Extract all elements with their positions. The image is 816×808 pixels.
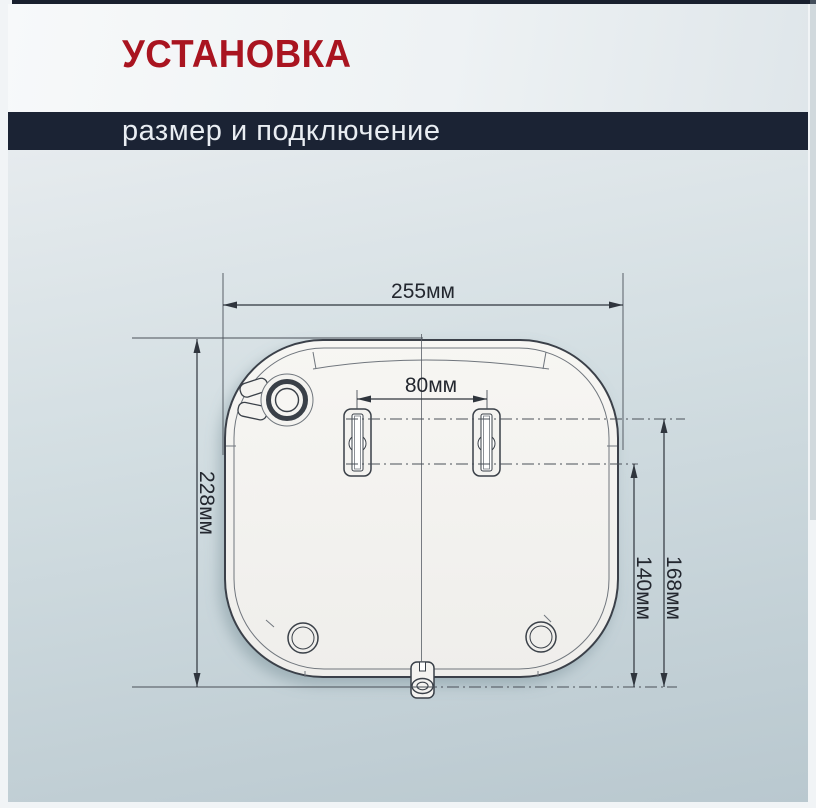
dimension-upper-mount-label: 168мм [662, 556, 685, 620]
dimension-height: 228мм [194, 339, 219, 687]
dimension-lower-mount-label: 140мм [632, 556, 655, 620]
dimension-width-label: 255мм [391, 280, 455, 303]
bottom-bracket [411, 662, 434, 698]
dimension-lower-mount: 140мм [631, 464, 656, 687]
dimension-height-label: 228мм [195, 471, 218, 535]
dimension-mount-spacing-label: 80мм [405, 374, 457, 397]
photo-right-edge [810, 0, 816, 520]
dimension-upper-mount: 168мм [661, 419, 686, 687]
product-installation-card: УСТАНОВКА размер и подключение [0, 0, 816, 808]
dimension-width: 255мм [223, 280, 623, 309]
installation-diagram: 255мм 80мм 228мм 140мм 168мм [0, 0, 816, 808]
